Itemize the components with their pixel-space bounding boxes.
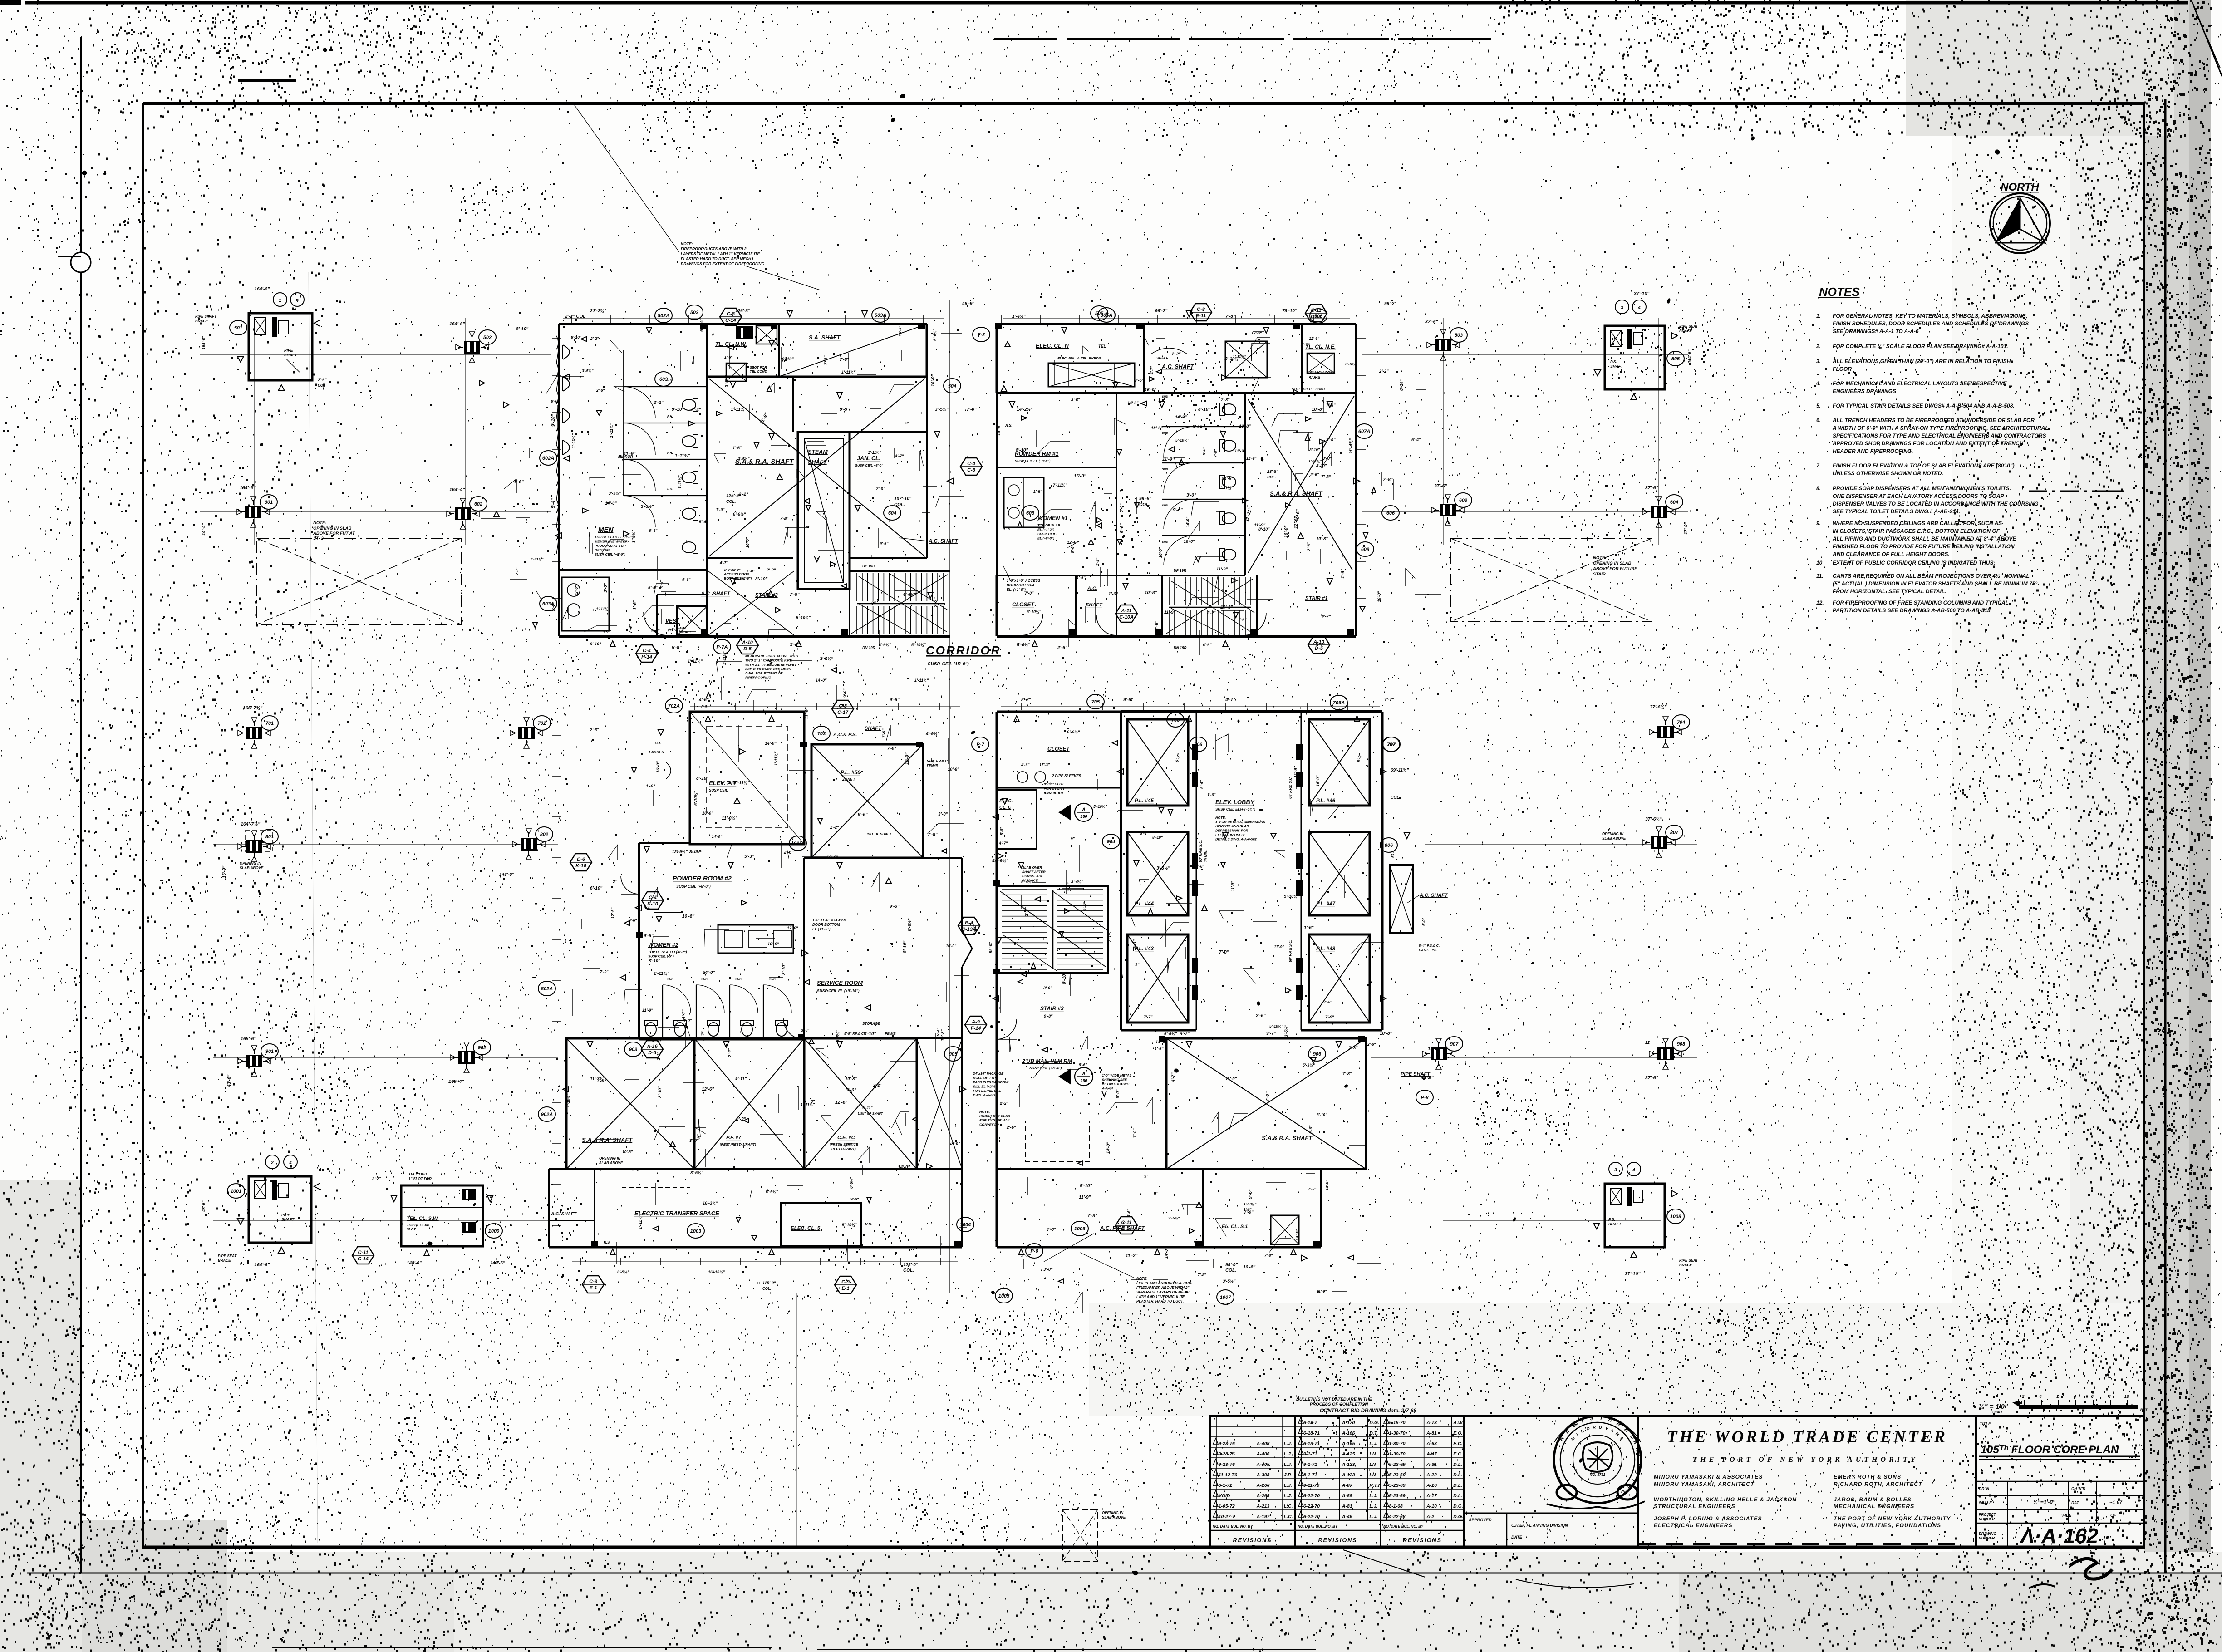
svg-text:OPENING IN: OPENING IN [1602, 832, 1623, 836]
svg-text:11.: 11. [1816, 573, 1824, 579]
svg-text:7'-8": 7'-8" [628, 624, 633, 633]
svg-text:5'-4": 5'-4" [1140, 831, 1149, 836]
svg-text:CONTRACT BID DRAWING dat: CONTRACT BID DRAWING date. 2-7-68 [1320, 1408, 1416, 1414]
svg-text:FOR MECHANICAL AND ELECTRICAL: FOR MECHANICAL AND ELECTRICAL LAYOUTS SE… [1833, 380, 2007, 387]
svg-text:7'-8": 7'-8" [1321, 475, 1331, 480]
svg-text:3'-0": 3'-0" [951, 1141, 960, 1146]
svg-text:7'-7": 7'-7" [1384, 698, 1394, 703]
svg-text:D.G.: D.G. [1453, 1514, 1463, 1519]
svg-text:ELEC. CL. 5: ELEC. CL. 5 [791, 1226, 821, 1231]
svg-text:NO. DATE BUL. NO. BY: NO. DATE BUL. NO. BY [1298, 1524, 1338, 1529]
svg-text:16'-0": 16'-0" [1184, 539, 1195, 544]
svg-text:9'-6": 9'-6" [1083, 902, 1087, 911]
svg-text:1003: 1003 [690, 1229, 701, 1234]
svg-text:F-14: F-14 [971, 1026, 981, 1031]
svg-text:AND CLEARANCE OF FULL HEIGHT D: AND CLEARANCE OF FULL HEIGHT DOORS. [1832, 551, 1950, 557]
svg-text:2'-6": 2'-6" [1307, 542, 1311, 551]
svg-text:7'-8": 7'-8" [1342, 1072, 1352, 1077]
svg-text:FINISH FLOOR ELEVATION & TOP O: FINISH FLOOR ELEVATION & TOP OF SLAB ELE… [1833, 462, 2015, 469]
svg-text:37'-6¾": 37'-6¾" [1645, 816, 1662, 822]
svg-text:3'-5½": 3'-5½" [1223, 1279, 1236, 1284]
svg-text:1'-6": 1'-6" [646, 784, 655, 789]
svg-text:11'-9": 11'-9" [1246, 456, 1257, 461]
svg-text:6-18-71: 6-18-71 [1303, 1441, 1320, 1446]
svg-text:C-3: C-3 [589, 1279, 597, 1284]
svg-text:D-5: D-5 [648, 1050, 657, 1056]
svg-text:4-22-68: 4-22-68 [1388, 1514, 1405, 1519]
svg-text:604: 604 [888, 511, 896, 516]
svg-text:APPROVED SHOP DRAWINGS FOR LOC: APPROVED SHOP DRAWINGS FOR LOCATION AND … [1832, 440, 2024, 447]
svg-text:9'-9": 9'-9" [1356, 752, 1363, 762]
svg-text:9'-6": 9'-6" [1308, 1125, 1313, 1134]
svg-text:2 - .: 2 - . [2096, 1518, 2104, 1523]
svg-text:503: 503 [1455, 333, 1463, 338]
svg-text:6'-6½": 6'-6½" [907, 918, 912, 931]
svg-text:D.L.: D.L. [1453, 1493, 1462, 1499]
svg-text:1'-11¾": 1'-11¾" [596, 607, 610, 611]
svg-text:FOR FUTURE MAIL: FOR FUTURE MAIL [979, 1118, 1011, 1122]
svg-text:6'-6½": 6'-6½" [1164, 1032, 1177, 1037]
svg-text:NO. DATE BUL. NO. BY: NO. DATE BUL. NO. BY [1383, 1524, 1424, 1529]
svg-text:12'-6": 12'-6" [787, 926, 798, 930]
svg-text:2'-6": 2'-6" [590, 728, 599, 732]
svg-text:3'-5½": 3'-5½" [641, 504, 654, 509]
svg-text:11'-9": 11'-9" [1079, 1195, 1091, 1200]
svg-text:1'-0"x1'-0": 1'-0"x1'-0" [724, 568, 741, 572]
svg-text:8'-6": 8'-6" [1071, 398, 1080, 402]
svg-text:8'-10": 8'-10" [696, 776, 708, 781]
svg-text:R.S.: R.S. [865, 1222, 872, 1226]
svg-text:NOTE:: NOTE: [313, 521, 327, 526]
svg-text:14'-0": 14'-0" [816, 678, 827, 683]
svg-text:3'-5½": 3'-5½" [609, 491, 621, 496]
svg-text:1'-0"x1'-0" ACCESS: 1'-0"x1'-0" ACCESS [812, 918, 846, 922]
svg-text:C-4: C-4 [967, 461, 975, 467]
svg-text:0: 0 [2039, 1394, 2041, 1399]
svg-text:D.L.: D.L. [1453, 1462, 1462, 1467]
svg-text:2'-2": 2'-2" [728, 1048, 732, 1057]
svg-text:SUSP CEIL: SUSP CEIL [709, 788, 728, 792]
svg-text:37'-6": 37'-6" [1434, 483, 1448, 489]
svg-text:7'-0": 7'-0" [1047, 1227, 1056, 1232]
svg-text:9-1-71: 9-1-71 [1303, 1462, 1317, 1467]
svg-text:SHAFT: SHAFT [284, 353, 297, 357]
svg-text:9-23-76: 9-23-76 [1219, 1462, 1235, 1467]
svg-text:OF: OF [2110, 1513, 2116, 1518]
svg-text:1-30-70: 1-30-70 [1389, 1441, 1405, 1446]
svg-text:16'-3¾": 16'-3¾" [703, 1201, 718, 1206]
svg-text:5'-0": 5'-0" [1422, 918, 1426, 926]
svg-text:SPECIFICATIONS FOR TYPE AND EL: SPECIFICATIONS FOR TYPE AND ELECTRICAL E… [1833, 433, 2046, 439]
svg-text:KNOCK OUT SLAB: KNOCK OUT SLAB [979, 1114, 1010, 1118]
svg-text:EL. (+1'-6"): EL. (+1'-6") [1007, 588, 1026, 592]
svg-text:5'-4": 5'-4" [691, 408, 701, 413]
svg-text:SND: SND [735, 978, 742, 981]
svg-text:DAT.: DAT. [2071, 1500, 2080, 1505]
svg-text:SUSP. CEIL (+8'-0"): SUSP. CEIL (+8'-0") [595, 552, 626, 556]
svg-text:8'-10": 8'-10" [903, 941, 908, 953]
svg-text:C-11: C-11 [358, 1250, 368, 1255]
svg-text:ELEC. PNL. & TEL. BKBDS: ELEC. PNL. & TEL. BKBDS [1057, 356, 1101, 360]
svg-text:8'-10": 8'-10" [658, 1086, 663, 1098]
svg-text:FLOOR: FLOOR [1833, 366, 1852, 372]
svg-text:8: 8 [2108, 1394, 2110, 1399]
svg-text:8'-10": 8'-10" [1198, 407, 1210, 412]
svg-text:L.J.: L.J. [1284, 1451, 1292, 1457]
svg-text:10'-8": 10'-8" [1243, 1265, 1255, 1270]
svg-text:SUSP CEIL (+8'-0"): SUSP CEIL (+8'-0") [676, 884, 711, 889]
svg-text:A-63: A-63 [1426, 1441, 1437, 1446]
svg-text:PASS THRU WINDOW: PASS THRU WINDOW [973, 1080, 1009, 1084]
svg-text:9-11-70: 9-11-70 [1303, 1483, 1320, 1488]
svg-text:3: 3 [1621, 305, 1623, 310]
svg-text:11'-0½": 11'-0½" [722, 816, 737, 821]
svg-text:SHAFT: SHAFT [865, 726, 882, 731]
svg-text:CH 'K'D: CH 'K'D [2071, 1486, 2085, 1491]
svg-text:MINORU YAMASAKI & ASSOCIATES: MINORU YAMASAKI & ASSOCIATES [1654, 1474, 1763, 1480]
svg-text:ELEV. LOBBY: ELEV. LOBBY [1215, 799, 1255, 806]
svg-text:J.P.: J.P. [1284, 1472, 1292, 1478]
svg-text:16'-9": 16'-9" [222, 866, 227, 878]
svg-text:DISPENSER VALVES TO BE LOCATED: DISPENSER VALVES TO BE LOCATED IN ACCORD… [1833, 501, 2039, 507]
svg-text:EL (+1'-2"): EL (+1'-2") [1037, 528, 1055, 532]
svg-text:FIREPROOFING: FIREPROOFING [745, 676, 771, 680]
svg-text:COL.: COL. [1139, 502, 1150, 507]
svg-text:12'-6": 12'-6" [1294, 516, 1299, 529]
svg-text:3'-5½": 3'-5½" [738, 457, 750, 461]
svg-text:2'-2": 2'-2" [766, 568, 776, 573]
svg-text:VOID: VOID [1219, 1493, 1230, 1499]
svg-text:164'-6": 164'-6" [240, 485, 256, 491]
svg-text:A-31: A-31 [1426, 1462, 1437, 1467]
svg-text:A-47: A-47 [1426, 1451, 1437, 1457]
svg-text:LIMIT OF SHAFT: LIMIT OF SHAFT [858, 1112, 883, 1116]
svg-text:STORAGE: STORAGE [862, 1022, 880, 1026]
svg-text:11'-9": 11'-9" [1230, 881, 1235, 891]
svg-text:2'-2": 2'-2" [1379, 369, 1389, 374]
svg-text:10'-8": 10'-8" [948, 767, 959, 772]
svg-text:506: 506 [1314, 314, 1323, 319]
svg-text:5'-3": 5'-3" [744, 854, 754, 859]
svg-text:SUSP CEIL EL(+9'-0¾"): SUSP CEIL EL(+9'-0¾") [1215, 807, 1256, 811]
svg-text:11'-9": 11'-9" [1234, 449, 1246, 454]
svg-text:9-23-76: 9-23-76 [1219, 1441, 1235, 1446]
svg-text:703: 703 [817, 731, 826, 737]
svg-text:PROVIDE SOAP DISPENSERS AT ALL: PROVIDE SOAP DISPENSERS AT ALL MEN AND W… [1833, 485, 2011, 492]
svg-text:5-23-69: 5-23-69 [1389, 1462, 1405, 1467]
svg-text:DN 19R: DN 19R [1174, 646, 1187, 650]
svg-text:P.L. #45: P.L. #45 [1135, 798, 1154, 804]
svg-text:9": 9" [905, 421, 910, 425]
svg-text:7'-8": 7'-8" [1213, 449, 1218, 457]
svg-text:7'-8": 7'-8" [1383, 477, 1393, 482]
svg-text:R.S.: R.S. [604, 1240, 611, 1244]
svg-text:5'-10¾": 5'-10¾" [693, 791, 698, 806]
svg-text:8'-10": 8'-10" [1016, 448, 1028, 453]
svg-text:160: 160 [1080, 814, 1087, 819]
svg-text:37'-10": 37'-10" [1634, 291, 1650, 296]
svg-text:148'-0": 148'-0" [499, 872, 514, 877]
svg-text:CLOSET: CLOSET [1012, 601, 1035, 608]
svg-text:502: 502 [483, 335, 492, 340]
svg-text:5-23-69: 5-23-69 [1389, 1493, 1405, 1499]
svg-text:CURB: CURB [1310, 375, 1320, 379]
svg-text:9'-6": 9'-6" [1202, 447, 1206, 455]
svg-text:SUSP. CEIL.: SUSP. CEIL. [1037, 532, 1057, 536]
svg-text:A-197: A-197 [1256, 1514, 1270, 1519]
svg-text:STEAM: STEAM [808, 449, 828, 455]
svg-text:1'-11¾": 1'-11¾" [841, 370, 856, 374]
svg-text:4'-6": 4'-6" [1021, 762, 1030, 767]
svg-text:78'-10": 78'-10" [1282, 309, 1297, 314]
svg-text:STAIR: STAIR [1593, 572, 1606, 577]
svg-text:PLASTER HARD TO DUCT. SEE MECH: PLASTER HARD TO DUCT. SEE MECH'L [681, 256, 754, 261]
svg-text:A-88: A-88 [1342, 1493, 1352, 1499]
svg-text:12'-6": 12'-6" [610, 907, 615, 919]
svg-text:707: 707 [1387, 742, 1396, 747]
svg-text:3'-0": 3'-0" [801, 1028, 810, 1032]
svg-text:L.J.: L.J. [1284, 1483, 1292, 1488]
svg-text:7'-0": 7'-0" [747, 569, 755, 573]
svg-text:REVISIONS: REVISIONS [1318, 1537, 1357, 1544]
svg-text:1'-11¾": 1'-11¾" [675, 453, 690, 458]
svg-text:BRACE: BRACE [218, 1259, 231, 1263]
svg-text:A.C.& P.S.: A.C.& P.S. [833, 732, 857, 737]
svg-text:SCALE: SCALE [1979, 1500, 1992, 1505]
svg-text:99'-2": 99'-2" [1155, 309, 1167, 314]
svg-text:601: 601 [265, 500, 273, 505]
svg-text:8'-10": 8'-10" [782, 357, 794, 362]
svg-text:NORTH: NORTH [2001, 181, 2040, 193]
svg-text:28'-8": 28'-8" [1267, 469, 1278, 474]
svg-text:2: 2 [270, 1160, 274, 1165]
svg-text:1: 1 [279, 298, 281, 303]
svg-text:PIPE: PIPE [680, 626, 688, 630]
svg-text:706: 706 [1171, 718, 1180, 723]
svg-text:S.A.& R.A. SHAFT: S.A.& R.A. SHAFT [1262, 1135, 1313, 1141]
svg-text:FROM HORIZONTAL. SEE TYPICAL: FROM HORIZONTAL. SEE TYPICAL DETAIL. [1833, 588, 1947, 595]
svg-text:3'-5½": 3'-5½" [1156, 866, 1170, 871]
svg-text:A-266: A-266 [1256, 1483, 1270, 1488]
svg-text:904: 904 [1107, 839, 1115, 845]
svg-text:9'-6": 9'-6" [1173, 508, 1183, 513]
svg-text:C-10A: C-10A [1119, 615, 1134, 620]
svg-text:5-23-69: 5-23-69 [1389, 1483, 1405, 1488]
svg-text:1'-6": 1'-6" [724, 355, 733, 359]
svg-text:5'-4": 5'-4" [936, 1028, 940, 1036]
svg-text:16'-0": 16'-0" [1284, 526, 1289, 538]
svg-text:DRAWING: DRAWING [1979, 1532, 1996, 1536]
svg-text:8'-4½": 8'-4½" [1071, 880, 1084, 884]
svg-text:807: 807 [1670, 830, 1679, 836]
svg-text:5'-10¾": 5'-10¾" [1269, 1024, 1283, 1028]
svg-text:NO. 3731: NO. 3731 [1590, 1473, 1606, 1477]
svg-text:3'-5½": 3'-5½" [935, 407, 949, 412]
svg-text:6'-5½": 6'-5½" [617, 1270, 630, 1274]
svg-text:VEST: VEST [665, 618, 680, 624]
svg-text:60' F.P.& S.C.: 60' F.P.& S.C. [1199, 840, 1203, 862]
svg-text:11'-9": 11'-9" [1216, 567, 1228, 572]
svg-text:FOR FIREPROOFING OF FREE STAND: FOR FIREPROOFING OF FREE STANDING COLUMN… [1833, 600, 2009, 606]
svg-text:LIMIT OF SHAFT: LIMIT OF SHAFT [865, 832, 892, 836]
svg-text:APPROVED: APPROVED [1468, 1518, 1492, 1522]
svg-text:2'-2": 2'-2" [372, 1176, 381, 1181]
svg-text:16'-0": 16'-0" [1316, 775, 1320, 787]
svg-text:FINISH SCHEDULES, DOOR SCHEDUL: FINISH SCHEDULES, DOOR SCHEDULES AND SCH… [1833, 320, 2029, 327]
svg-text:SHAFT: SHAFT [281, 1217, 295, 1222]
svg-text:10'-8": 10'-8" [622, 1150, 633, 1154]
svg-text:5'-10¾": 5'-10¾" [733, 576, 747, 580]
svg-text:10'-8": 10'-8" [1380, 1031, 1392, 1036]
svg-text:A-408: A-408 [1256, 1441, 1270, 1446]
svg-text:1'-11¾": 1'-11¾" [734, 781, 750, 786]
svg-text:C.HIEF, PL ANNING DIVISION: C.HIEF, PL ANNING DIVISION [1511, 1523, 1568, 1528]
svg-text:16'-0": 16'-0" [1158, 547, 1163, 558]
svg-text:WORTHINGTON, SKILLING HELLE &: WORTHINGTON, SKILLING HELLE & JACKSON [1654, 1496, 1797, 1503]
svg-text:4: 4 [1632, 1168, 1635, 1173]
svg-text:A-81: A-81 [1426, 1431, 1437, 1436]
svg-text:9": 9" [1144, 1174, 1149, 1179]
svg-text:L.J.: L.J. [1284, 1441, 1292, 1446]
svg-text:10-27-7: 10-27-7 [1219, 1514, 1235, 1519]
svg-text:A-A-64: A-A-64 [1101, 1087, 1113, 1091]
svg-text:C-17: C-17 [837, 710, 849, 715]
svg-text:10'-8": 10'-8" [1316, 536, 1328, 541]
svg-text:1'-11¾": 1'-11¾" [654, 971, 669, 976]
svg-text:SEE TYPICAL TOILET DETAILS DWG: SEE TYPICAL TOILET DETAILS DWG.# A-AB-21… [1833, 508, 1960, 515]
svg-text:DEPRESSIONS FOR: DEPRESSIONS FOR [1215, 829, 1249, 833]
svg-text:5'-10¾": 5'-10¾" [1224, 357, 1241, 362]
svg-text:UNLESS OTHERWISE SHOWN OR NOTE: UNLESS OTHERWISE SHOWN OR NOTED. [1833, 470, 1943, 477]
svg-text:9'-6": 9'-6" [846, 1088, 856, 1093]
svg-text:¼"=1'-0": ¼"=1'-0" [2033, 1499, 2055, 1505]
svg-text:14'-0": 14'-0" [1325, 1180, 1329, 1190]
svg-text:5'-4": 5'-4" [648, 585, 658, 590]
svg-text:SUSP CEIL +8'-0": SUSP CEIL +8'-0" [855, 463, 883, 467]
svg-text:SLOT FOR: SLOT FOR [750, 365, 767, 369]
svg-text:CONVEYOR: CONVEYOR [979, 1123, 999, 1127]
svg-text:PIPE SEAT: PIPE SEAT [218, 1254, 237, 1258]
svg-text:11'-2": 11'-2" [1126, 1254, 1138, 1259]
svg-text:NOTE:: NOTE: [1215, 816, 1226, 820]
svg-text:1008: 1008 [1670, 1214, 1681, 1219]
svg-text:1000: 1000 [488, 1229, 500, 1234]
svg-text:SHAFT: SHAFT [1608, 1222, 1622, 1226]
svg-text:802A: 802A [541, 986, 553, 992]
svg-text:3'-0": 3'-0" [1043, 1267, 1053, 1272]
svg-text:7'-8": 7'-8" [1087, 1214, 1097, 1219]
svg-text:11'-9": 11'-9" [759, 412, 769, 425]
svg-text:9.: 9. [1816, 520, 1821, 526]
svg-text:1'-11¾": 1'-11¾" [609, 423, 614, 438]
svg-text:1'-6": 1'-6" [1304, 925, 1314, 930]
svg-text:10: 10 [1816, 560, 1823, 566]
svg-text:A-165: A-165 [1342, 1441, 1355, 1446]
svg-text:7'-8": 7'-8" [1225, 314, 1235, 319]
svg-text:DWG. A-A-6-35: DWG. A-A-6-35 [973, 1093, 998, 1097]
svg-text:4'-7": 4'-7" [719, 560, 728, 565]
svg-text:7'-0": 7'-0" [1025, 591, 1034, 595]
svg-text:4'-7": 4'-7" [1180, 1031, 1190, 1036]
svg-text:4'-7": 4'-7" [681, 1009, 686, 1019]
svg-text:9'-6": 9'-6" [850, 1197, 859, 1201]
svg-text:SHAFT: SHAFT [1086, 602, 1103, 608]
svg-text:ELEVATOR USES;: ELEVATOR USES; [1215, 833, 1245, 837]
svg-text:7'-8": 7'-8" [823, 355, 828, 365]
svg-text:1'-11¾": 1'-11¾" [688, 659, 703, 664]
svg-text:14'-4": 14'-4" [202, 523, 206, 536]
svg-text:9-1-71: 9-1-71 [1303, 1472, 1317, 1478]
svg-text:9-28-76: 9-28-76 [1219, 1451, 1235, 1457]
svg-text:COL.: COL. [903, 1268, 914, 1273]
svg-text:10'-8": 10'-8" [1145, 590, 1157, 595]
svg-text:43'-6": 43'-6" [227, 1075, 232, 1087]
svg-text:R.O.: R.O. [654, 741, 661, 745]
svg-text:A.C. SHAFT: A.C. SHAFT [551, 1212, 577, 1217]
svg-text:1'-11¾": 1'-11¾" [868, 450, 881, 455]
svg-text:10'-8": 10'-8" [1239, 424, 1251, 429]
svg-text:S.A.& R.A. SHAFT: S.A.& R.A. SHAFT [1270, 490, 1323, 497]
svg-text:1'-11¾": 1'-11¾" [801, 1102, 815, 1107]
svg-text:11'-9": 11'-9" [1164, 610, 1176, 615]
svg-text:5'-4": 5'-4" [699, 520, 708, 525]
svg-text:5-15-70: 5-15-70 [1389, 1420, 1405, 1426]
svg-text:WHERE NO SUSPENDED CEILINGS AR: WHERE NO SUSPENDED CEILINGS ARE CALLED F… [1833, 520, 2002, 526]
svg-text:FOR UTILITY: FOR UTILITY [1044, 787, 1065, 791]
svg-text:BRACE: BRACE [1679, 329, 1692, 333]
svg-text:A-46: A-46 [1342, 1514, 1352, 1519]
svg-text:2'-6": 2'-6" [1006, 1125, 1016, 1130]
svg-text:PIPE SEAT: PIPE SEAT [1679, 324, 1698, 329]
svg-text:HEIGHTS AND SLAB: HEIGHTS AND SLAB [1215, 824, 1249, 828]
svg-text:16'-10½": 16'-10½" [708, 1270, 725, 1274]
svg-text:(FRESH SERVICE: (FRESH SERVICE [830, 1142, 859, 1146]
svg-text:A-22: A-22 [1426, 1472, 1437, 1478]
svg-text:8'-0": 8'-0" [1116, 1089, 1120, 1098]
svg-text:DN 19R: DN 19R [862, 646, 875, 650]
svg-text:1'-6": 1'-6" [1108, 592, 1118, 597]
svg-text:OPENING IN: OPENING IN [240, 861, 261, 865]
svg-text:8'-10": 8'-10" [652, 1038, 663, 1043]
svg-text:C: C [1636, 1455, 1642, 1460]
svg-text:E-11: E-11 [1196, 313, 1206, 319]
svg-text:IN CLOSETS, STAIR PASSAGES E.T: IN CLOSETS, STAIR PASSAGES E.T.C., BOTTO… [1833, 528, 2000, 534]
svg-text:6'-6½": 6'-6½" [733, 512, 746, 517]
svg-text:7'-8": 7'-8" [1221, 398, 1230, 402]
svg-text:1" SLOT FOR: 1" SLOT FOR [408, 1177, 432, 1181]
svg-text:FEET: FEET [2140, 1409, 2148, 1411]
svg-text:6'-6": 6'-6" [1203, 643, 1212, 647]
svg-text:24"x36" PACKAGE: 24"x36" PACKAGE [973, 1072, 1004, 1076]
svg-text:6-1-72: 6-1-72 [1219, 1483, 1233, 1488]
svg-text:5'-10¾": 5'-10¾" [911, 643, 926, 647]
svg-text:12'-6": 12'-6" [1151, 426, 1163, 431]
svg-text:8'-2": 8'-2" [1021, 698, 1031, 703]
svg-text:17'-3": 17'-3" [1039, 762, 1050, 767]
svg-text:10: 10 [2124, 1394, 2129, 1399]
svg-text:501: 501 [234, 325, 242, 331]
svg-text:S.A. SHAFT: S.A. SHAFT [809, 334, 841, 341]
svg-text:2": 2" [612, 880, 618, 885]
svg-text:9'-7": 9'-7" [1266, 1031, 1276, 1036]
svg-text:7'-7": 7'-7" [1144, 1015, 1153, 1019]
svg-text:TEL. CL. S.W.: TEL. CL. S.W. [407, 1216, 439, 1221]
svg-text:9'-6": 9'-6" [890, 698, 900, 703]
svg-text:NOTE:: NOTE: [681, 241, 693, 246]
svg-text:9'-6": 9'-6" [890, 904, 900, 909]
svg-text:1'-11¾": 1'-11¾" [731, 407, 747, 412]
svg-text:E-1: E-1 [589, 1285, 597, 1291]
